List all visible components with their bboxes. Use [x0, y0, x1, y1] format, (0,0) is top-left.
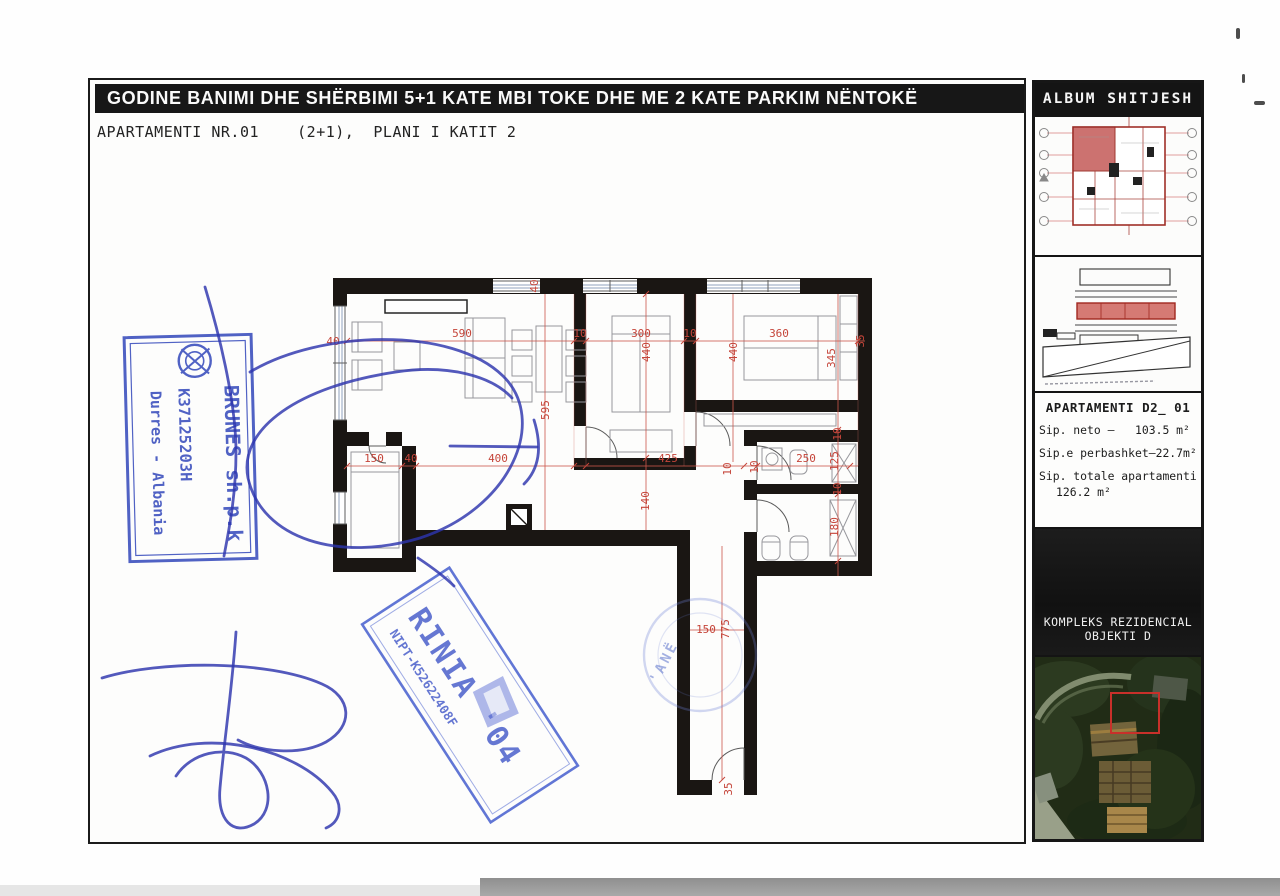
round-stamp-text: 'ANË	[646, 638, 682, 686]
dining-table	[536, 326, 562, 392]
dim-hall-width: 400	[488, 452, 508, 465]
dim-hall-east-width: 425	[658, 452, 678, 465]
dim-wall-c: 10	[721, 462, 734, 475]
shaft	[506, 504, 532, 530]
dim-bath1-width: 250	[796, 452, 816, 465]
dim-wall-e: 10	[831, 427, 844, 440]
dim-corridor-width: 150	[696, 623, 716, 636]
scan-speck	[1242, 74, 1245, 83]
dim-top-wall: 40	[528, 279, 541, 292]
window-top-3	[707, 279, 800, 293]
scanner-edge-bar-light	[0, 885, 480, 896]
tv-cabinet	[385, 300, 467, 313]
scanned-sheet: GODINE BANIMI DHE SHËRBIMI 5+1 KATE MBI …	[0, 0, 1280, 896]
dim-living-width: 590	[452, 327, 472, 340]
dim-living-depth: 595	[539, 400, 552, 420]
area-net: Sip. neto – 103.5 m²	[1039, 423, 1198, 437]
scan-speck	[1254, 101, 1265, 105]
complex-line2: OBJEKTI D	[1035, 629, 1201, 643]
window-left-living	[333, 306, 347, 420]
area-common: Sip.e perbashket–22.7m²	[1039, 446, 1198, 460]
dim-storage-wall: 40	[404, 452, 417, 465]
aerial-render	[1035, 657, 1201, 839]
brunes-city: Durres - Albania	[146, 391, 168, 536]
scanner-edge-bar	[480, 878, 1280, 896]
dim-right-edge: 35	[854, 334, 867, 347]
round-stamp: 'ANË	[644, 599, 756, 711]
dim-bedroom1-width: 300	[631, 327, 651, 340]
dim-wall-b: 10	[683, 327, 696, 340]
rinia-name: RINIA '04	[400, 602, 528, 772]
key-plan	[1035, 117, 1201, 257]
apartment-info: APARTAMENTI D2_ 01 Sip. neto – 103.5 m² …	[1035, 393, 1201, 529]
dim-storage-width: 150	[364, 452, 384, 465]
dim-bedroom1-depth: 440	[640, 342, 653, 362]
area-total-value: 126.2 m²	[1056, 485, 1198, 499]
dim-bedroom2-depth: 345	[825, 348, 838, 368]
scan-speck	[1236, 28, 1240, 39]
complex-render-photo	[1035, 657, 1201, 839]
window-top-2	[583, 279, 637, 293]
window-left-storage	[333, 492, 347, 524]
highlighted-floor	[1077, 303, 1175, 319]
highlighted-apartment	[1073, 127, 1115, 171]
dim-hall-depth: 140	[639, 491, 652, 511]
area-total-label: Sip. totale apartamenti	[1039, 469, 1198, 483]
complex-line1: KOMPLEKS REZIDENCIAL	[1035, 615, 1201, 629]
complex-label: KOMPLEKS REZIDENCIAL OBJEKTI D	[1035, 529, 1201, 657]
section-drawing	[1035, 257, 1201, 391]
brunes-logo-icon	[178, 344, 211, 377]
album-header: ALBUM SHITJESH	[1035, 83, 1201, 117]
album-sidebar: ALBUM SHITJESH	[1032, 80, 1204, 842]
dim-bath2-depth: 180	[828, 517, 841, 537]
plan-walls	[333, 278, 872, 795]
dim-wall-f: 10	[831, 482, 844, 495]
apartment-id: APARTAMENTI D2_ 01	[1038, 400, 1198, 415]
brunes-reg-no: K37125203H	[174, 388, 194, 482]
dim-bedroom2-depth-line: 440	[727, 342, 740, 362]
dim-bedroom2-width: 360	[769, 327, 789, 340]
section-elevation	[1035, 257, 1201, 393]
rinia-stamp: RINIA '04 NIPT-K52622408F	[362, 568, 578, 823]
dim-wall-d: 10	[748, 460, 761, 473]
dim-wall-a: 10	[573, 327, 586, 340]
dim-bath1-depth: 125	[828, 451, 841, 471]
dim-corridor-end-wall: 35	[722, 782, 735, 795]
key-plan-drawing	[1035, 117, 1201, 255]
